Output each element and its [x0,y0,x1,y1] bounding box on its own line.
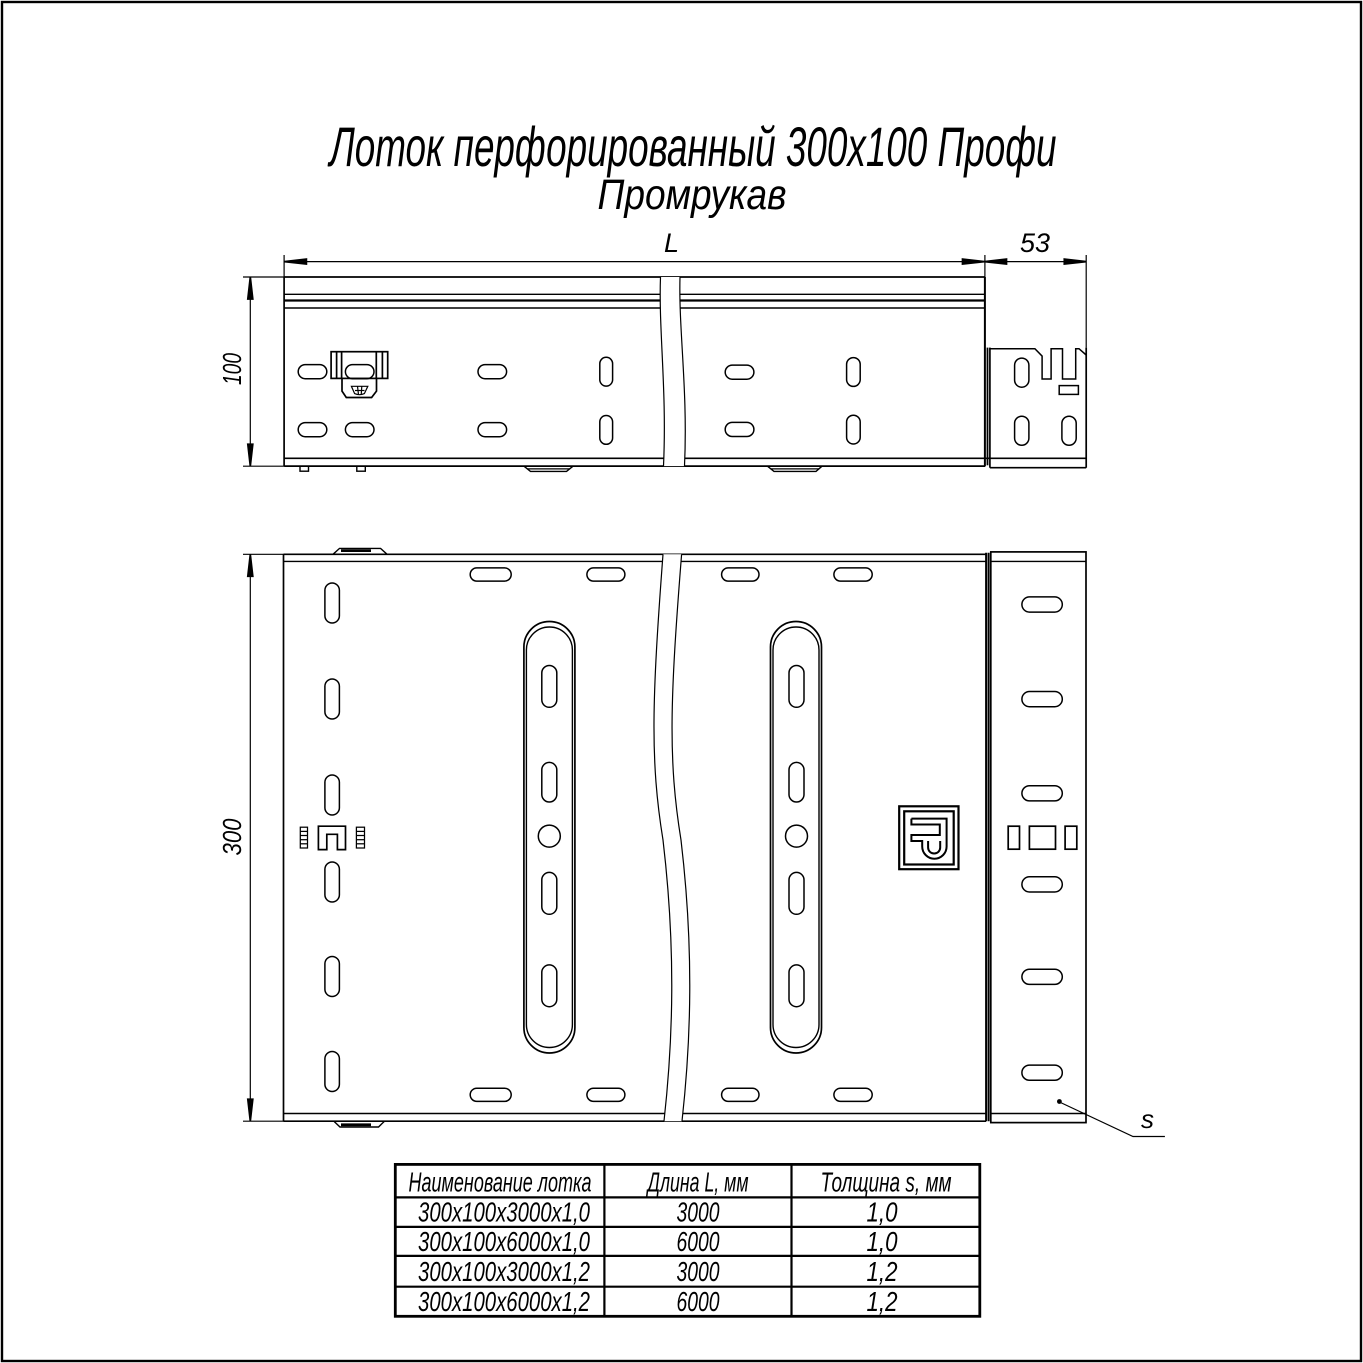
svg-text:Длина L, мм: Длина L, мм [646,1167,749,1198]
svg-text:3000: 3000 [677,1256,720,1287]
svg-text:300х100х3000х1,0: 300х100х3000х1,0 [418,1196,590,1227]
svg-text:1,2: 1,2 [867,1286,898,1317]
svg-text:L: L [664,228,679,258]
svg-text:1,0: 1,0 [867,1196,898,1227]
svg-text:Лоток перфорированный 300х100: Лоток перфорированный 300х100 Профи [328,115,1057,178]
svg-text:6000: 6000 [677,1286,720,1317]
svg-text:s: s [1141,1104,1154,1134]
svg-text:53: 53 [1020,228,1050,258]
svg-text:1,0: 1,0 [867,1226,898,1257]
svg-text:300: 300 [217,818,247,855]
svg-text:300х100х6000х1,2: 300х100х6000х1,2 [418,1286,590,1317]
svg-text:100: 100 [217,353,247,385]
svg-text:Наименование лотка: Наименование лотка [409,1167,592,1198]
svg-text:6000: 6000 [677,1226,720,1257]
svg-text:Промрукав: Промрукав [598,172,787,219]
svg-text:300х100х6000х1,0: 300х100х6000х1,0 [418,1226,590,1257]
svg-text:Толщина s, мм: Толщина s, мм [821,1167,952,1198]
svg-text:3000: 3000 [677,1196,720,1227]
svg-text:300х100х3000х1,2: 300х100х3000х1,2 [418,1256,590,1287]
svg-text:1,2: 1,2 [867,1256,898,1287]
